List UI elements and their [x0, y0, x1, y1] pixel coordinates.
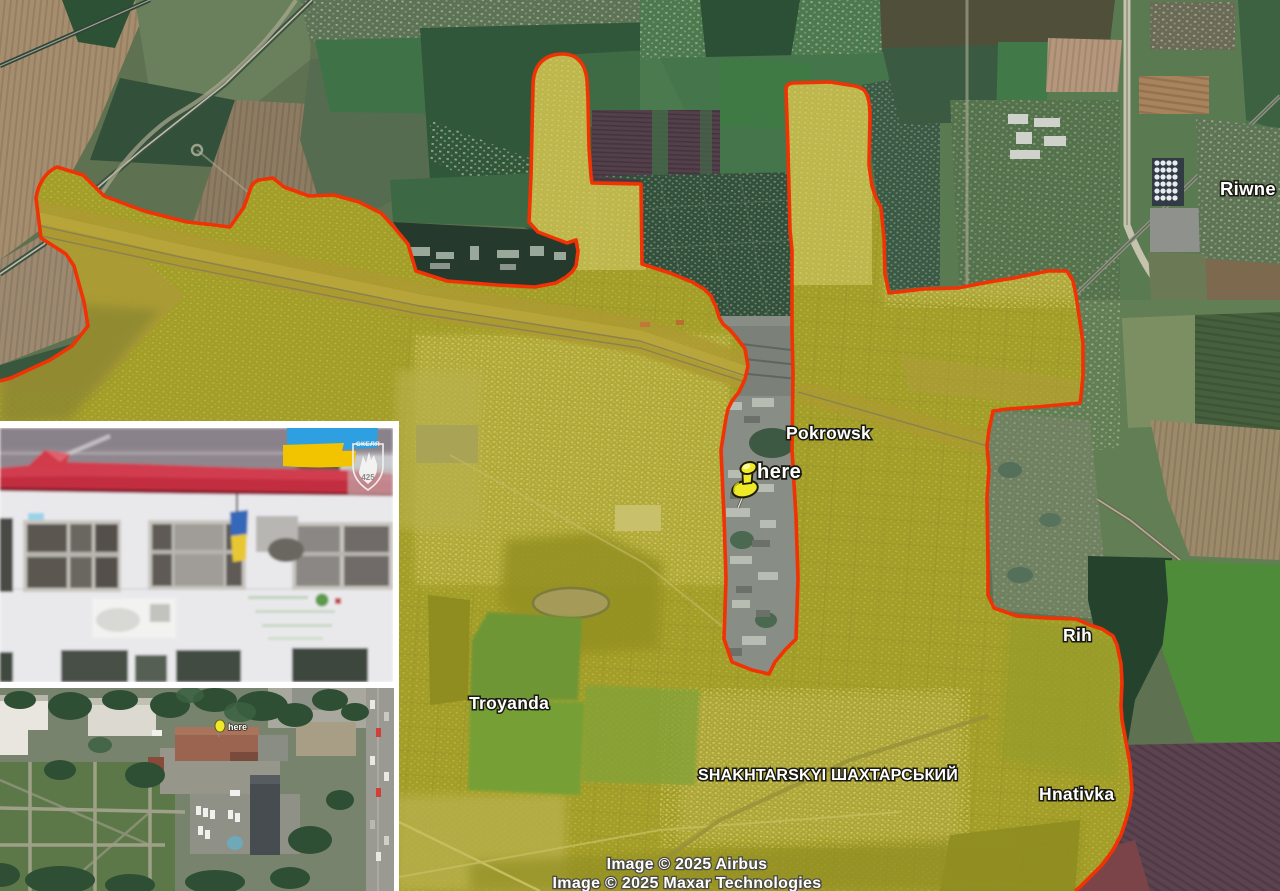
svg-text:here: here	[757, 461, 801, 483]
svg-text:425: 425	[361, 473, 375, 482]
svg-text:Rih: Rih	[1063, 625, 1092, 645]
svg-text:Troyanda: Troyanda	[469, 693, 549, 713]
svg-text:here: here	[228, 722, 247, 732]
svg-text:СКЕЛЯ: СКЕЛЯ	[356, 441, 380, 448]
svg-text:Image © 2025 Airbus: Image © 2025 Airbus	[607, 856, 768, 873]
svg-text:SHAKHTARSKYI ШАХТАРСЬКИЙ: SHAKHTARSKYI ШАХТАРСЬКИЙ	[698, 765, 958, 784]
svg-text:Hnativka: Hnativka	[1039, 784, 1114, 804]
svg-text:Riwne: Riwne	[1220, 178, 1276, 199]
svg-text:Pokrowsk: Pokrowsk	[786, 423, 871, 443]
svg-text:Image © 2025 Maxar Technologie: Image © 2025 Maxar Technologies	[553, 875, 822, 891]
